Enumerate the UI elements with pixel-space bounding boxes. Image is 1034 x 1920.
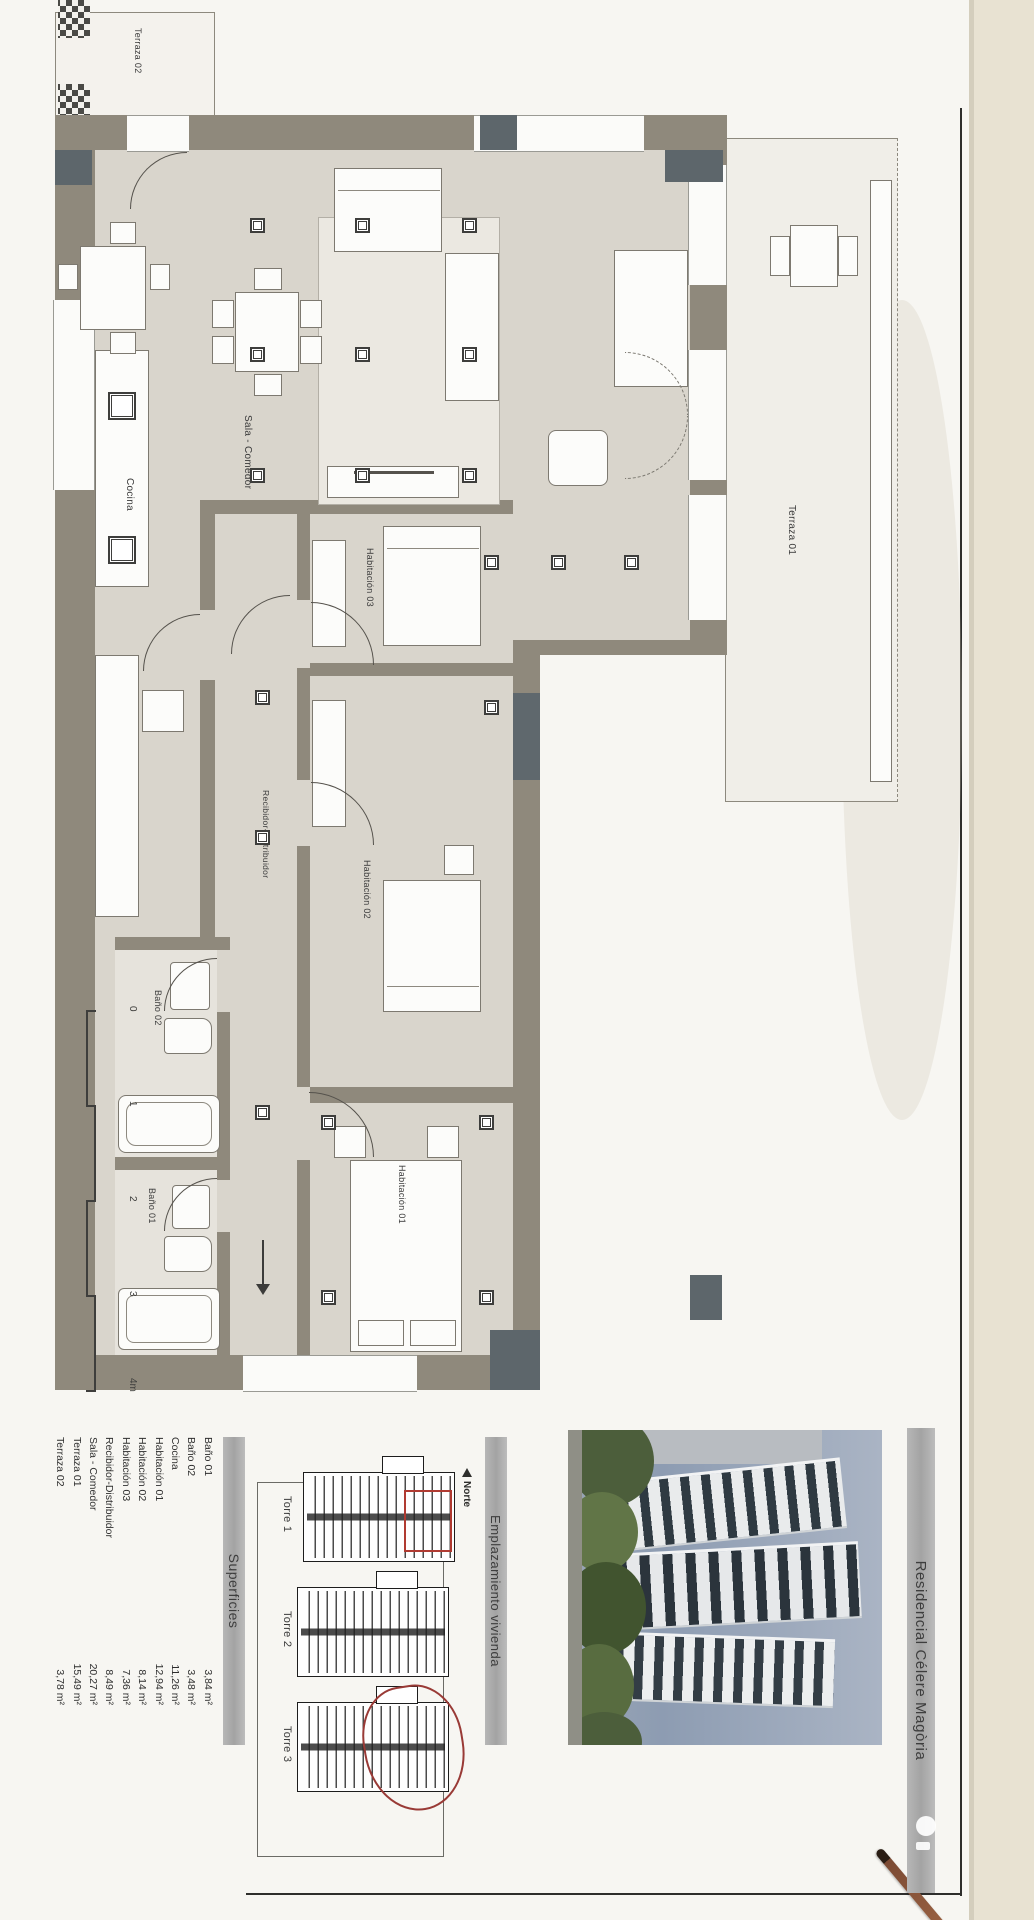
symbol-square — [624, 555, 639, 570]
paper-edge-shadow — [969, 0, 974, 1920]
watermark-icon — [916, 1816, 936, 1836]
symbol-square — [551, 555, 566, 570]
symbol-square — [321, 1115, 336, 1130]
superficies-row: Habitación 028,14 m² — [134, 1437, 150, 1705]
wall-bano02-left — [115, 937, 230, 950]
sheet-frame-top — [960, 108, 962, 1896]
north-arrow-icon — [462, 1468, 472, 1477]
wall-corridor-1 — [297, 514, 310, 600]
dining-chair — [212, 300, 234, 328]
superficies-row: Sala - Comedor20,27 m² — [85, 1437, 101, 1705]
window-hab01-right — [243, 1355, 417, 1392]
kitchen-table — [80, 246, 146, 330]
symbol-square — [462, 218, 477, 233]
dining-chair — [254, 374, 282, 396]
superficies-row: Cocina11,26 m² — [167, 1437, 183, 1705]
bed-hab02 — [383, 880, 481, 1012]
room-name: Terraza 02 — [54, 1437, 66, 1487]
symbol-square — [255, 830, 270, 845]
tower-label: Torre 2 — [280, 1611, 292, 1647]
room-name: Baño 01 — [202, 1437, 214, 1476]
symbol-square — [250, 468, 265, 483]
armchair — [548, 430, 608, 486]
wall-kitchen-b — [200, 680, 215, 937]
scale-labels: 01234m — [124, 1010, 138, 1400]
torre1-wing — [382, 1456, 424, 1474]
symbol-square — [255, 690, 270, 705]
wall-step — [513, 640, 727, 655]
symbol-square — [255, 1105, 270, 1120]
superficies-row: Baño 013,84 m² — [200, 1437, 216, 1705]
dining-table — [235, 292, 299, 372]
sofa — [334, 168, 442, 252]
hab01-label: Habitación 01 — [397, 1165, 406, 1224]
cocina-label: Cocina — [124, 478, 135, 511]
symbol-square — [355, 468, 370, 483]
room-name: Cocina — [169, 1437, 181, 1470]
page-title: Residencial Célere Magòria — [913, 1561, 930, 1761]
wall-banos-top-1 — [217, 1012, 230, 1180]
symbol-square — [355, 218, 370, 233]
entrance-arrow-head — [256, 1284, 270, 1295]
dining-chair — [212, 336, 234, 364]
pillar — [490, 1330, 540, 1390]
scale-label: 0 — [127, 1006, 138, 1012]
window-dark-hab02 — [513, 693, 540, 780]
terraza01-planter — [870, 180, 892, 782]
room-area: 3,84 m² — [202, 1669, 214, 1705]
photo-ground — [568, 1430, 582, 1745]
building-photo — [568, 1430, 882, 1745]
room-area: 12,94 m² — [153, 1664, 165, 1705]
wall-corridor-2 — [297, 668, 310, 780]
room-name: Baño 02 — [185, 1437, 197, 1476]
north-indicator: Norte — [460, 1468, 474, 1507]
scale-label: 2 — [127, 1196, 138, 1202]
superficies-row: Habitación 0112,94 m² — [150, 1437, 166, 1705]
symbol-square — [462, 468, 477, 483]
room-area: 3,48 m² — [185, 1669, 197, 1705]
scale-label: 4m — [127, 1378, 138, 1392]
symbol-square — [250, 347, 265, 362]
kitchen-chair — [58, 264, 78, 290]
bano02-toilet — [164, 1018, 212, 1054]
room-area: 15,49 m² — [71, 1664, 83, 1705]
bed-pillow — [358, 1320, 404, 1346]
pillar-terrace-corner — [690, 1275, 722, 1320]
dining-chair — [300, 300, 322, 328]
sofa-2 — [445, 253, 499, 401]
room-name: Habitación 02 — [136, 1437, 148, 1501]
bano01-toilet — [164, 1236, 212, 1272]
kitchen-sink — [108, 392, 136, 420]
bed-hab03 — [383, 526, 481, 646]
fridge — [142, 690, 184, 732]
bed-pillow-line — [387, 986, 479, 987]
symbol-square — [479, 1115, 494, 1130]
terrace-chair — [838, 236, 858, 276]
superficies-table: Baño 013,84 m²Baño 023,48 m²Cocina11,26 … — [52, 1437, 216, 1705]
superficies-row: Recibidor-Distribuidor8,49 m² — [101, 1437, 117, 1705]
superficies-row: Habitación 037,36 m² — [118, 1437, 134, 1705]
symbol-square — [484, 555, 499, 570]
nightstand — [444, 845, 474, 875]
sofa-cushion-line — [338, 190, 440, 191]
dining-chair — [300, 336, 322, 364]
symbol-square — [321, 1290, 336, 1305]
nightstand — [427, 1126, 459, 1158]
room-name: Recibidor-Distribuidor — [103, 1437, 115, 1538]
watermark-dot — [916, 1842, 930, 1850]
torre2-plan — [297, 1587, 449, 1677]
room-area: 11,26 m² — [169, 1664, 181, 1705]
room-area: 8,49 m² — [103, 1669, 115, 1705]
terrace-chair — [770, 236, 790, 276]
hab03-label: Habitación 03 — [365, 548, 374, 607]
symbol-square — [484, 700, 499, 715]
wall-corridor-3 — [297, 846, 310, 1087]
wall-kitchen-a — [200, 500, 215, 610]
hab02-label: Habitación 02 — [362, 860, 371, 919]
symbol-square — [462, 347, 477, 362]
terraza01-label: Terraza 01 — [786, 505, 797, 555]
room-name: Habitación 03 — [120, 1437, 132, 1501]
bed-pillow — [410, 1320, 456, 1346]
room-name: Habitación 01 — [153, 1437, 165, 1501]
terrace-table — [790, 225, 838, 287]
room-area: 3,78 m² — [54, 1669, 66, 1705]
emplazamiento-title: Emplazamiento vivienda — [489, 1515, 504, 1667]
wall-corridor-4 — [297, 1160, 310, 1355]
emplazamiento-bar: Emplazamiento vivienda — [485, 1437, 507, 1745]
bed-pillow-line — [387, 548, 479, 549]
scale-label: 3 — [127, 1291, 138, 1297]
kitchen-chair — [150, 264, 170, 290]
superficies-bar: Superficies — [223, 1437, 245, 1745]
entrance-arrow-icon — [262, 1240, 264, 1286]
symbol-square — [250, 218, 265, 233]
tower-label: Torre 3 — [280, 1726, 292, 1762]
north-label: Norte — [462, 1481, 473, 1507]
tower-label: Torre 1 — [280, 1496, 292, 1532]
kitchen-chair — [110, 222, 136, 244]
symbol-square — [479, 1290, 494, 1305]
scale-label: 1 — [127, 1101, 138, 1107]
room-area: 8,14 m² — [136, 1669, 148, 1705]
window-terrace-2 — [688, 495, 727, 620]
kitchen-appliance-slab — [95, 655, 139, 917]
superficies-row: Terraza 0115,49 m² — [68, 1437, 84, 1705]
window-terrace-1 — [688, 165, 727, 285]
door-terraza02 — [127, 115, 189, 152]
bano02-label: Baño 02 — [153, 990, 162, 1026]
pillar — [55, 150, 92, 185]
scale-bar: 01234m — [68, 1010, 138, 1400]
superficies-row: Terraza 023,78 m² — [52, 1437, 68, 1705]
hatch-mark — [58, 0, 90, 38]
room-name: Terraza 01 — [71, 1437, 83, 1487]
kitchen-hob — [108, 536, 136, 564]
door-terrace-french — [688, 350, 727, 480]
room-area: 20,27 m² — [87, 1664, 99, 1705]
scanned-floorplan-photo: Terraza 01 Terraza 02 — [0, 0, 1034, 1920]
pillar — [480, 115, 517, 150]
bano01-label: Baño 01 — [147, 1188, 156, 1224]
floorplan-sheet: Terraza 01 Terraza 02 — [0, 0, 1034, 1920]
terraza02-label: Terraza 02 — [133, 28, 142, 74]
symbol-square — [355, 347, 370, 362]
torre2-wing — [376, 1571, 418, 1589]
shower-inner — [126, 1295, 212, 1343]
superficies-title: Superficies — [226, 1554, 242, 1629]
room-name: Sala - Comedor — [87, 1437, 99, 1511]
paper-edge-strip — [974, 0, 1034, 1920]
kitchen-chair — [110, 332, 136, 354]
superficies-row: Baño 023,48 m² — [183, 1437, 199, 1705]
bathtub-inner — [126, 1102, 212, 1146]
dining-chair — [254, 268, 282, 290]
unit-highlight-red-box — [404, 1490, 452, 1552]
sheet-frame-right — [246, 1893, 962, 1895]
room-area: 7,36 m² — [120, 1669, 132, 1705]
pillar — [665, 150, 723, 182]
